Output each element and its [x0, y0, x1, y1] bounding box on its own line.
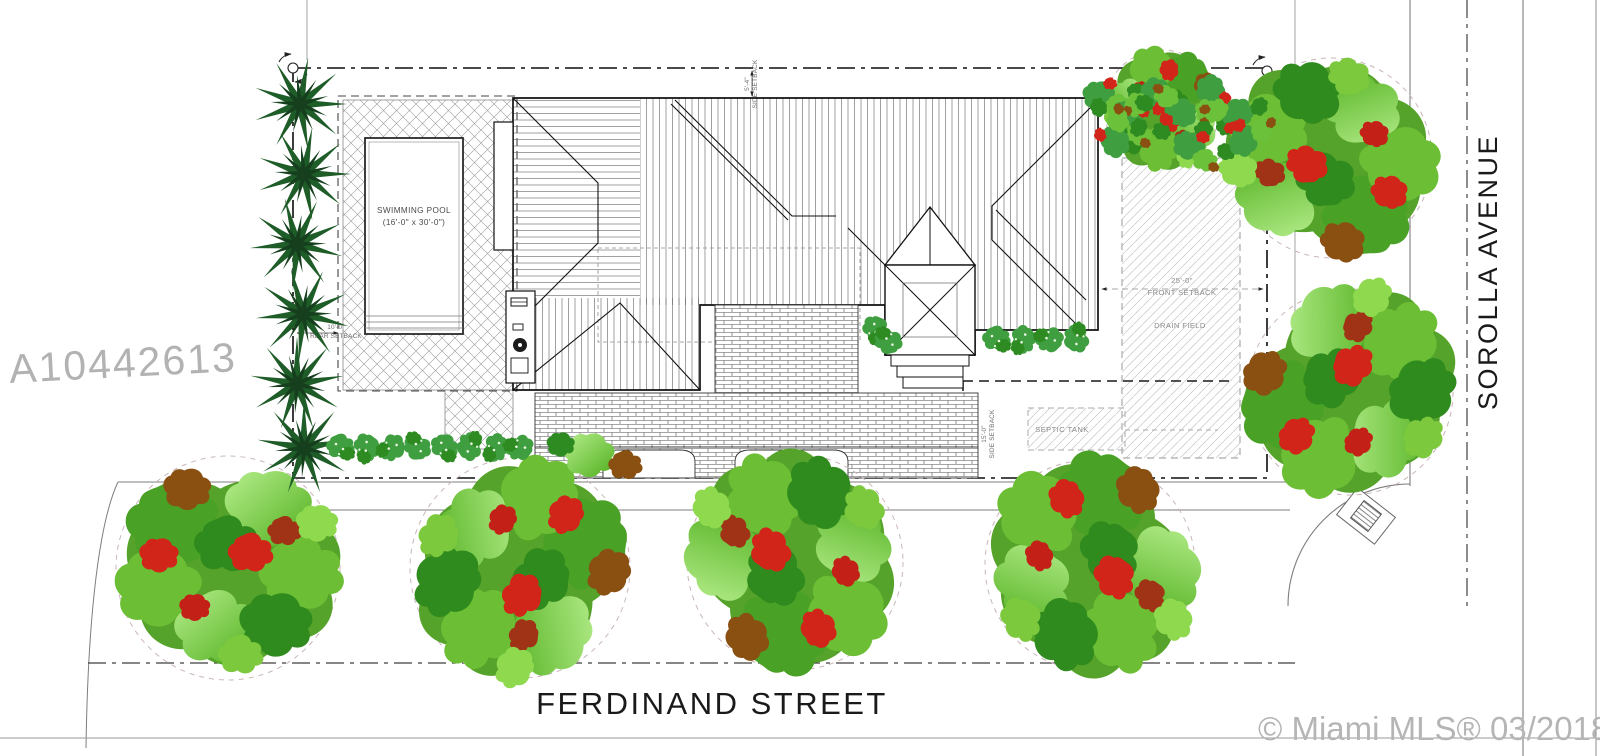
tree-canopy [942, 417, 1234, 718]
side-setback-dim: 15'-0" [981, 425, 988, 442]
catch-basin [1337, 488, 1396, 544]
front-setback-dim: 25'-0" [1171, 276, 1193, 285]
site-plan-drawing: SWIMMING POOL (16'-0" x 30'-0") DRAIN FI… [0, 0, 1600, 756]
pool-equipment [506, 291, 535, 383]
pool-area: SWIMMING POOL (16'-0" x 30'-0") [338, 96, 517, 449]
entry-walkway [715, 305, 858, 393]
north-setback-dim: 5'-4" [744, 77, 751, 91]
drain-field [1122, 158, 1240, 458]
mls-watermark: © Miami MLS® 03/2018 [1258, 710, 1600, 748]
west-porch [494, 122, 513, 250]
swimming-pool [365, 138, 463, 334]
entry-steps [891, 355, 969, 388]
sorolla-avenue-label: SOROLLA AVENUE [1473, 134, 1503, 410]
pool-label: SWIMMING POOL [377, 206, 451, 215]
ferdinand-street-label: FERDINAND STREET [536, 686, 888, 721]
front-setback-label: FRONT SETBACK [1148, 288, 1217, 297]
septic-tank-label: SEPTIC TANK [1035, 425, 1089, 434]
roof-hatch-main [640, 98, 1098, 305]
drain-field-label: DRAIN FIELD [1154, 321, 1206, 330]
roof-hatch-garage [513, 298, 700, 390]
tree-canopy [115, 469, 344, 674]
roof-hatch-west [513, 98, 640, 298]
side-setback-label: SIDE SETBACK [989, 409, 996, 458]
pool-dims-label: (16'-0" x 30'-0") [383, 218, 446, 227]
site-plan-page: SWIMMING POOL (16'-0" x 30'-0") DRAIN FI… [0, 0, 1600, 756]
left-curb-curve [86, 482, 118, 748]
